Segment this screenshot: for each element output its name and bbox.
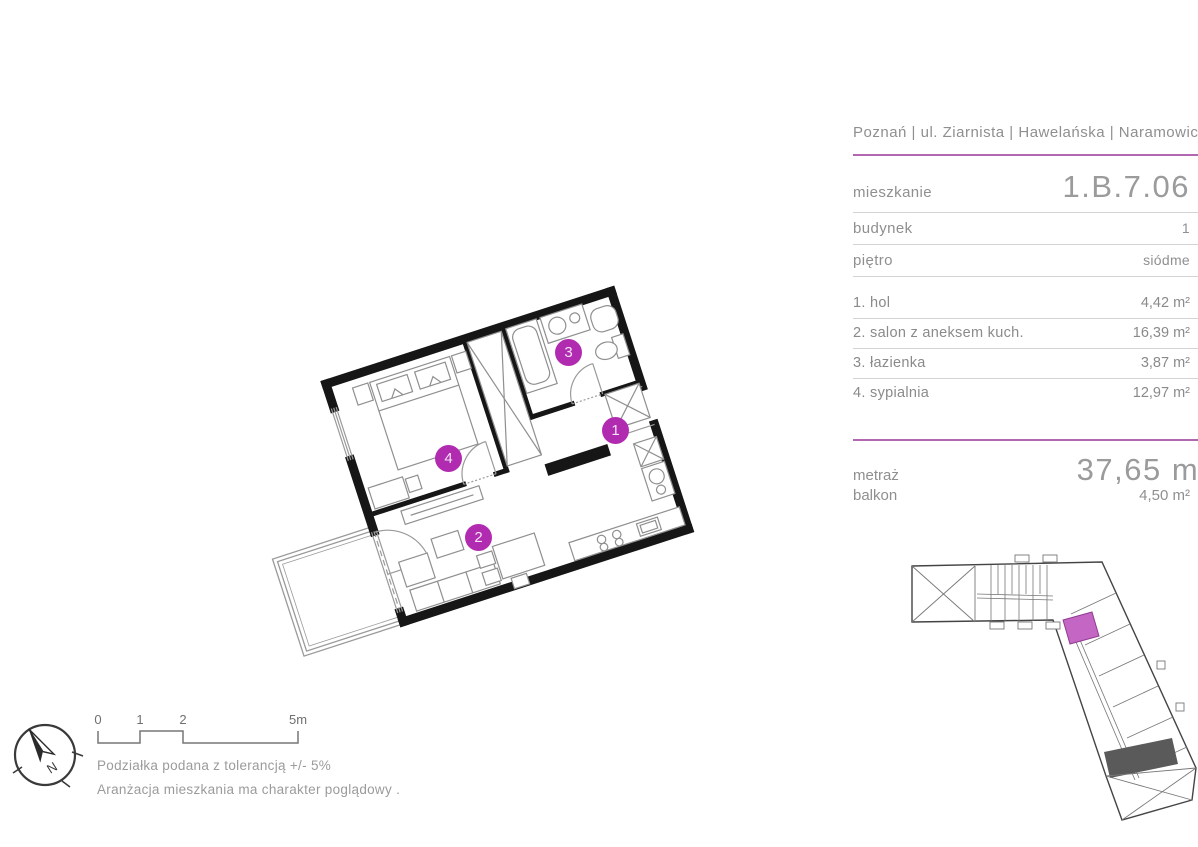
row-mieszkanie: mieszkanie 1.B.7.06 bbox=[853, 156, 1198, 213]
chair bbox=[405, 475, 422, 492]
room-marker-3: 3 bbox=[555, 339, 582, 366]
info-panel: Poznań | ul. Ziarnista | Hawelańska | Na… bbox=[853, 120, 1198, 504]
note-arrangement: Aranżacja mieszkania ma charakter pogląd… bbox=[97, 778, 400, 802]
pietro-label: piętro bbox=[853, 252, 893, 269]
metraz-label: metraż bbox=[853, 467, 899, 484]
coffee-table bbox=[431, 530, 464, 558]
budynek-label: budynek bbox=[853, 220, 913, 237]
row-pietro: piętro siódme bbox=[853, 245, 1198, 277]
mieszkanie-label: mieszkanie bbox=[853, 184, 932, 201]
room-row-sypialnia: 4. sypialnia 12,97 m² bbox=[853, 379, 1198, 408]
building-outline bbox=[912, 562, 1196, 820]
room-marker-1: 1 bbox=[602, 417, 629, 444]
room-row-lazienka: 3. łazienka 3,87 m² bbox=[853, 349, 1198, 379]
compass-n-label: N bbox=[44, 759, 60, 777]
scale-tick-2: 2 bbox=[179, 712, 186, 727]
row-balkon: balkon 4,50 m² bbox=[853, 487, 1198, 504]
room-row-salon: 2. salon z aneksem kuch. 16,39 m² bbox=[853, 319, 1198, 349]
building-map bbox=[895, 548, 1198, 847]
note-tolerance: Podziałka podana z tolerancją +/- 5% bbox=[97, 754, 400, 778]
balkon-value: 4,50 m² bbox=[1139, 487, 1190, 504]
location-header: Poznań | ul. Ziarnista | Hawelańska | Na… bbox=[853, 120, 1198, 156]
budynek-value: 1 bbox=[1182, 220, 1190, 236]
balkon-label: balkon bbox=[853, 487, 897, 504]
room-area: 16,39 m² bbox=[1133, 324, 1190, 343]
rooms-table: 1. hol 4,42 m² 2. salon z aneksem kuch. … bbox=[853, 289, 1198, 408]
scale-bar: 0 1 2 5m bbox=[88, 710, 328, 755]
room-marker-4: 4 bbox=[435, 445, 462, 472]
floor-plan bbox=[270, 272, 710, 692]
scale-tick-0: 0 bbox=[94, 712, 101, 727]
nightstand bbox=[353, 383, 374, 405]
mieszkanie-value: 1.B.7.06 bbox=[1063, 168, 1190, 206]
window-bedroom bbox=[331, 407, 353, 461]
window-balcony-door bbox=[372, 531, 403, 613]
room-row-hol: 1. hol 4,42 m² bbox=[853, 289, 1198, 319]
room-marker-2: 2 bbox=[465, 524, 492, 551]
room-name: 3. łazienka bbox=[853, 354, 926, 373]
row-budynek: budynek 1 bbox=[853, 213, 1198, 245]
balcony bbox=[272, 527, 403, 656]
room-area: 3,87 m² bbox=[1141, 354, 1190, 373]
room-name: 4. sypialnia bbox=[853, 384, 929, 403]
compass: N bbox=[8, 712, 90, 794]
scale-tick-1: 1 bbox=[136, 712, 143, 727]
room-area: 4,42 m² bbox=[1141, 294, 1190, 313]
row-metraz: metraż 37,65 m² bbox=[853, 441, 1198, 489]
metraz-value: 37,65 m² bbox=[1077, 451, 1198, 489]
room-area: 12,97 m² bbox=[1133, 384, 1190, 403]
room-name: 1. hol bbox=[853, 294, 890, 313]
north-arrow-icon: N bbox=[22, 724, 64, 777]
pietro-value: siódme bbox=[1143, 252, 1190, 268]
floorplan-card-page: { "header": { "location": "Poznań | ul. … bbox=[0, 0, 1198, 847]
armchair bbox=[399, 553, 436, 587]
wall-stub bbox=[545, 444, 611, 476]
scale-tick-5m: 5m bbox=[289, 712, 307, 727]
legend-notes: Podziałka podana z tolerancją +/- 5% Ara… bbox=[97, 754, 400, 802]
dining-table bbox=[492, 533, 544, 579]
room-name: 2. salon z aneksem kuch. bbox=[853, 324, 1024, 343]
